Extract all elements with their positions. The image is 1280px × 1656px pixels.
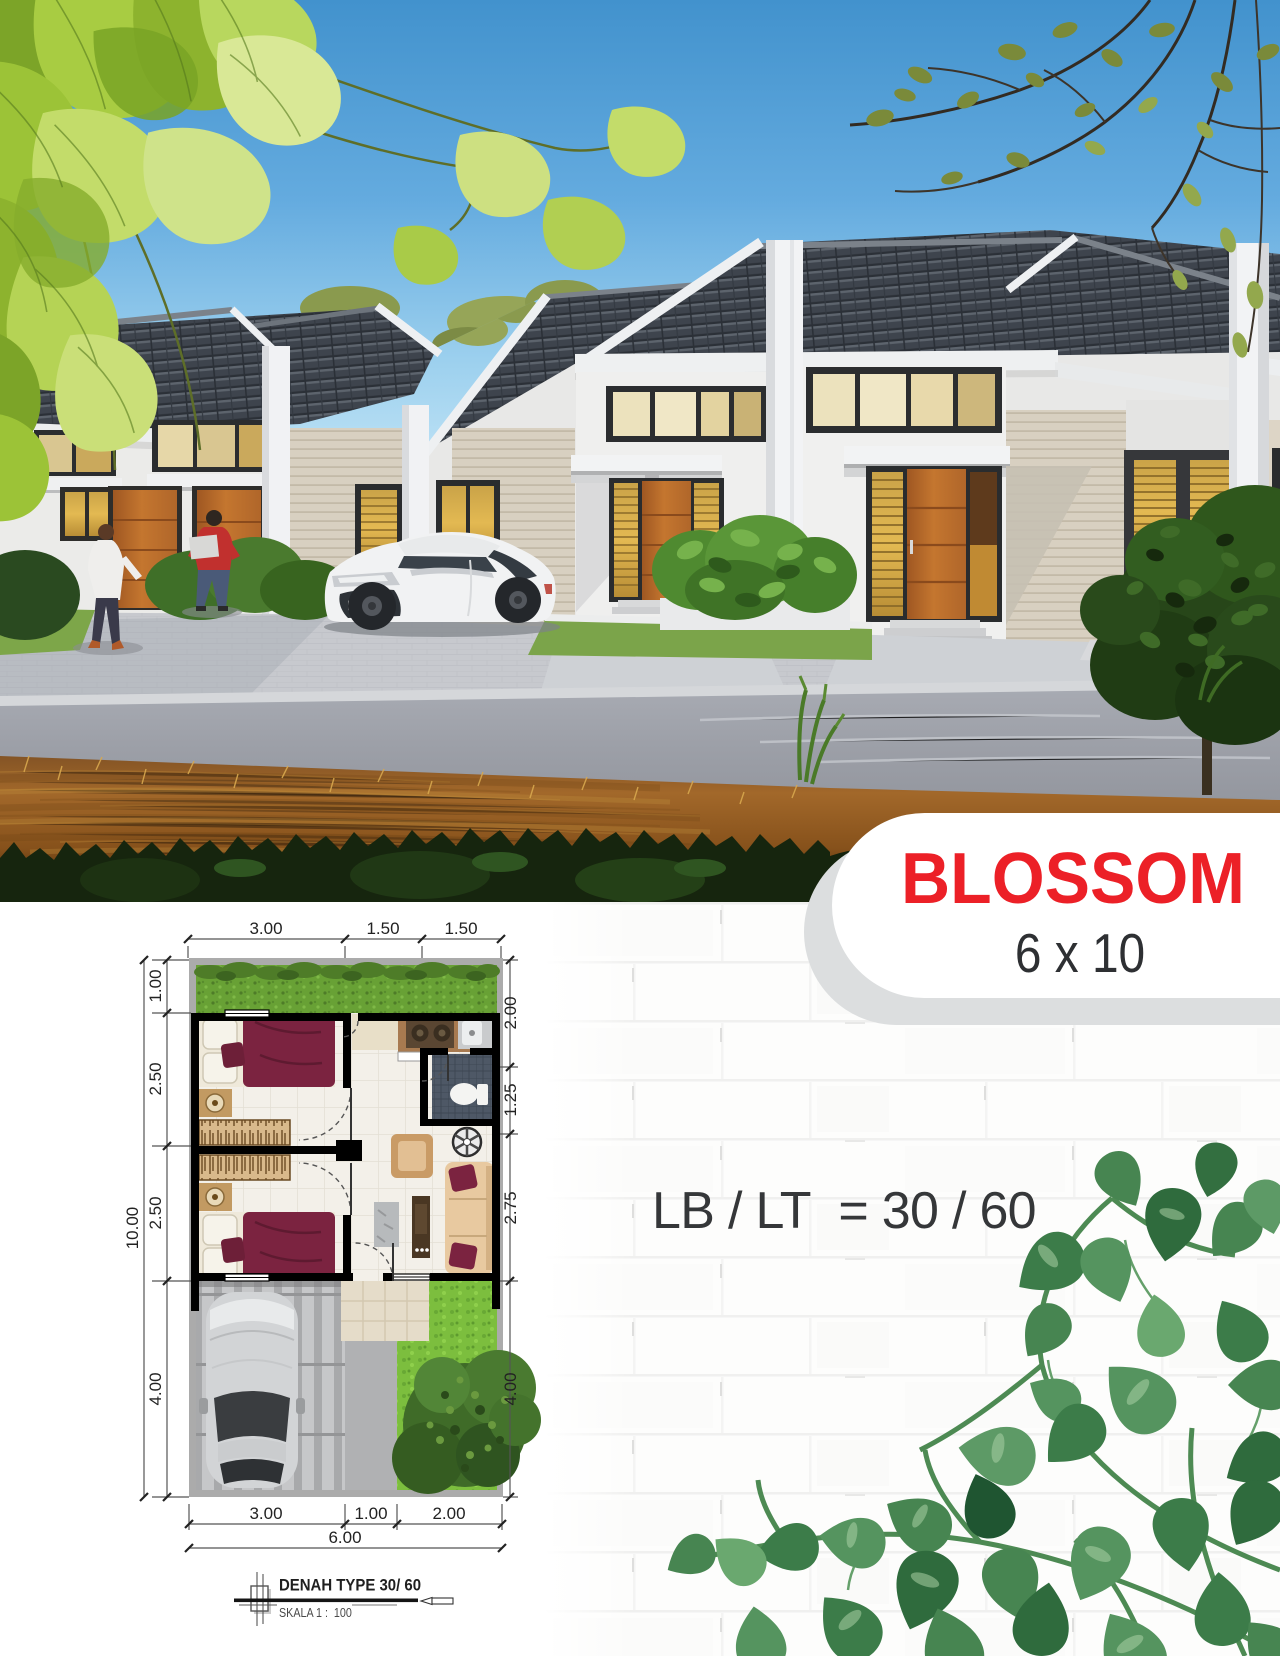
svg-text:1.25: 1.25 [501,1083,520,1116]
svg-text:2.50: 2.50 [146,1196,165,1229]
svg-text:1.00: 1.00 [354,1504,387,1523]
svg-text:SKALA 1 : 100: SKALA 1 : 100 [279,1606,352,1620]
svg-text:2.00: 2.00 [501,996,520,1029]
svg-text:3.00: 3.00 [249,919,282,938]
svg-text:4.00: 4.00 [146,1372,165,1405]
svg-text:6.00: 6.00 [328,1528,361,1547]
svg-text:4.00: 4.00 [501,1372,520,1405]
svg-text:DENAH TYPE 30/ 60: DENAH TYPE 30/ 60 [279,1577,421,1595]
svg-text:2.50: 2.50 [146,1062,165,1095]
svg-text:1.50: 1.50 [444,919,477,938]
svg-text:1.00: 1.00 [146,969,165,1002]
svg-text:1.50: 1.50 [366,919,399,938]
svg-text:10.00: 10.00 [123,1207,142,1250]
svg-text:2.00: 2.00 [432,1504,465,1523]
svg-text:3.00: 3.00 [249,1504,282,1523]
svg-text:2.75: 2.75 [501,1191,520,1224]
